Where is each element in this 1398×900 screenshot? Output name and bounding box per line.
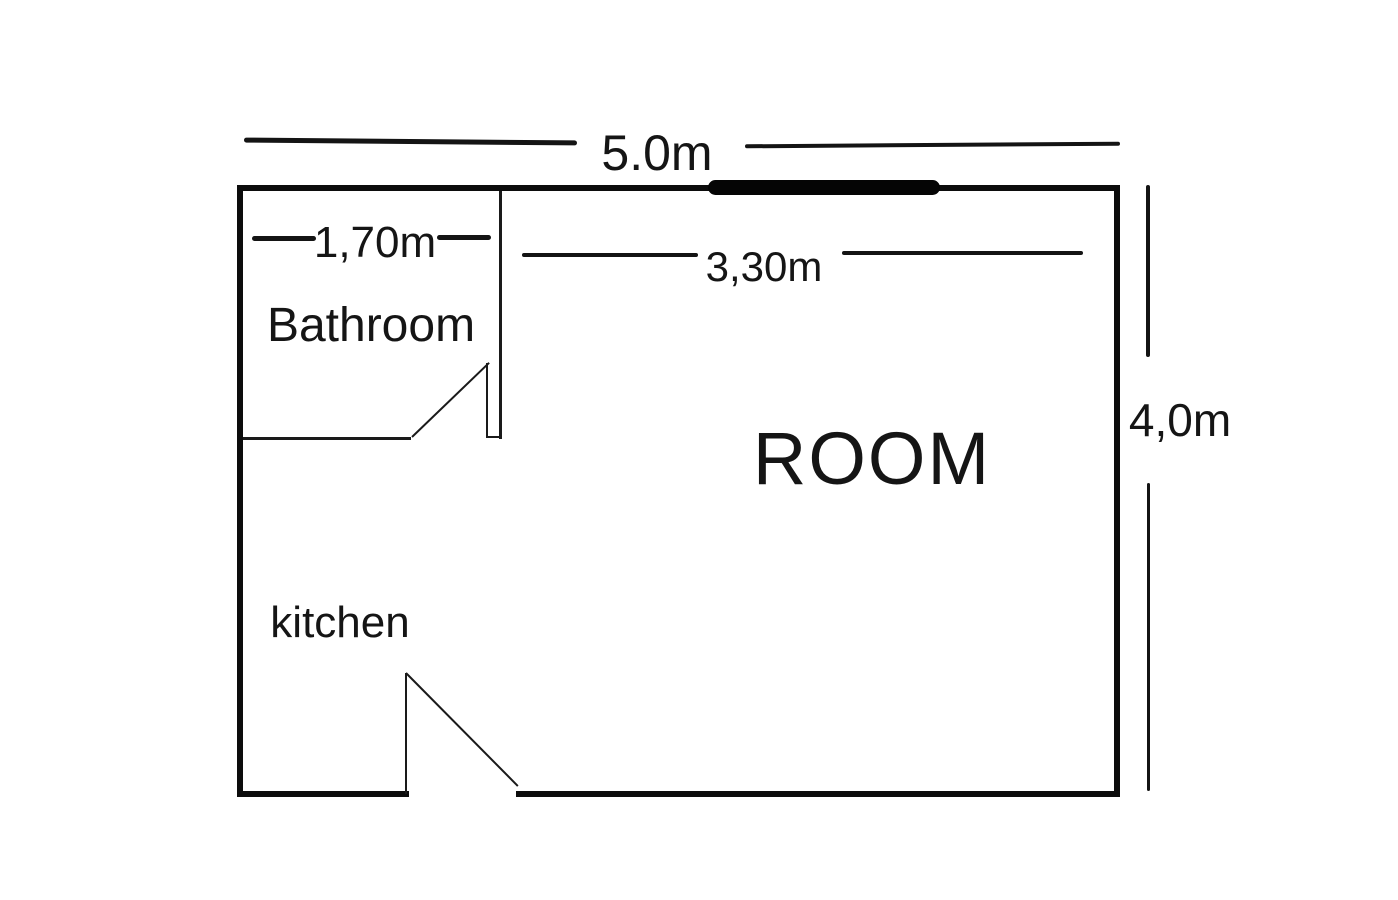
room-label: ROOM bbox=[753, 422, 991, 496]
dim-total-height-line-top bbox=[1146, 185, 1150, 357]
kitchen-door-opening bbox=[409, 788, 516, 798]
dim-total-height-line-bottom bbox=[1147, 483, 1150, 791]
dim-total-width-line-left bbox=[244, 138, 577, 146]
bathroom-door-jamb bbox=[486, 436, 502, 438]
dim-total-height-label: 4,0m bbox=[1129, 397, 1231, 443]
floor-plan-canvas: 5.0m 1,70m 3,30m 4,0m Bathroom ROOM kitc… bbox=[0, 0, 1398, 900]
dim-total-width-label: 5.0m bbox=[601, 128, 712, 178]
dim-total-width-line-right bbox=[745, 142, 1120, 149]
kitchen-door-leaf bbox=[405, 673, 407, 794]
dim-bathroom-width-line-right bbox=[437, 235, 491, 240]
dim-bathroom-width-label: 1,70m bbox=[314, 221, 436, 265]
bathroom-bottom-wall bbox=[243, 437, 411, 440]
dim-room-width-label: 3,30m bbox=[706, 246, 823, 288]
dim-room-width-line-left bbox=[522, 253, 698, 257]
kitchen-label: kitchen bbox=[270, 601, 409, 645]
bathroom-label: Bathroom bbox=[267, 302, 475, 350]
dim-room-width-line-right bbox=[842, 251, 1083, 255]
dim-bathroom-width-line-left bbox=[252, 236, 316, 241]
window-bar-icon bbox=[708, 180, 940, 195]
bathroom-door-leaf bbox=[486, 363, 488, 438]
bathroom-divider-wall bbox=[499, 191, 502, 439]
